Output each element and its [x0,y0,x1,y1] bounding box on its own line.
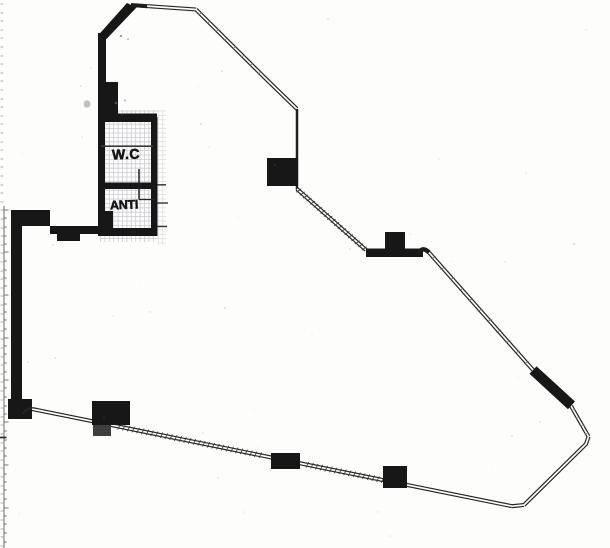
svg-text:ANTI: ANTI [110,198,138,213]
svg-text:W.C: W.C [112,146,140,163]
